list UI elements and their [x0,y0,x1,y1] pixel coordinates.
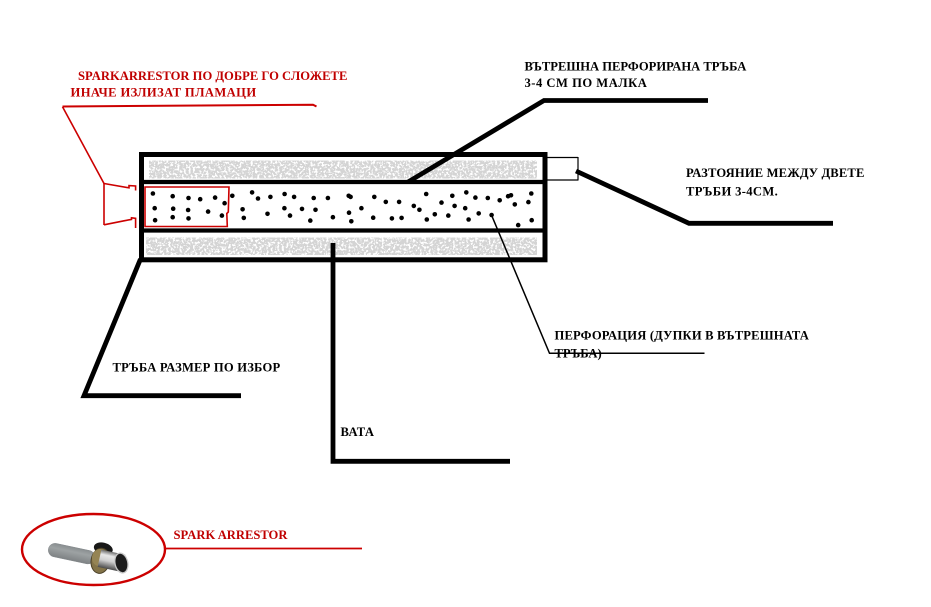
svg-text:ТРЪБА РАЗМЕР ПО ИЗБОР: ТРЪБА РАЗМЕР ПО ИЗБОР [113,361,281,375]
svg-text:РАЗТОЯНИЕ МЕЖДУ ДВЕТЕ: РАЗТОЯНИЕ МЕЖДУ ДВЕТЕ [686,166,865,180]
svg-text:ВАТА: ВАТА [341,425,375,439]
svg-text:3-4 СМ ПО МАЛКА: 3-4 СМ ПО МАЛКА [525,76,648,90]
svg-text:ИНАЧЕ ИЗЛИЗАТ ПЛАМАЦИ: ИНАЧЕ ИЗЛИЗАТ ПЛАМАЦИ [71,86,257,100]
svg-text:ПЕРФОРАЦИЯ (ДУПКИ В ВЪТРЕШНАТА: ПЕРФОРАЦИЯ (ДУПКИ В ВЪТРЕШНАТА [555,329,810,343]
svg-text:ВЪТРЕШНА ПЕРФОРИРАНА ТРЪБА: ВЪТРЕШНА ПЕРФОРИРАНА ТРЪБА [525,60,747,74]
svg-text:ТРЪБИ 3-4СМ.: ТРЪБИ 3-4СМ. [686,185,778,199]
svg-text:SPARK ARRESTOR: SPARK ARRESTOR [174,528,289,542]
svg-text:SPARKARRESTOR ПО ДОБРЕ ГО СЛОЖ: SPARKARRESTOR ПО ДОБРЕ ГО СЛОЖЕТЕ [78,69,347,83]
